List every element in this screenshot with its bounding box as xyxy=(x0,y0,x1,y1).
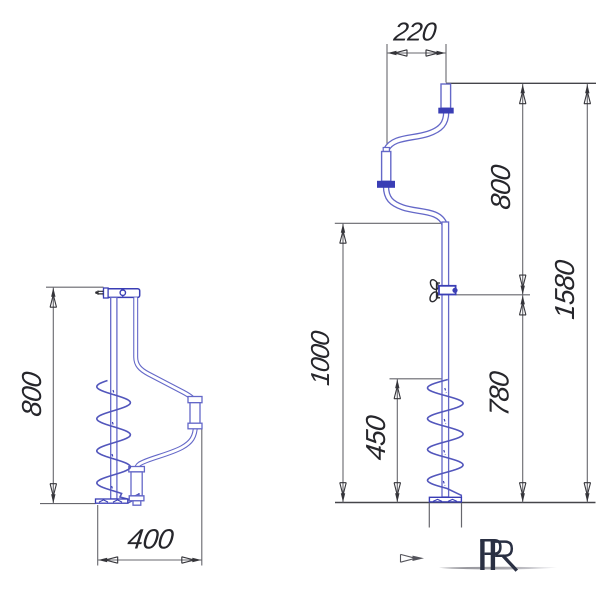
svg-text:1580: 1580 xyxy=(549,258,580,321)
svg-text:800: 800 xyxy=(485,162,516,211)
svg-text:780: 780 xyxy=(484,369,515,418)
svg-text:800: 800 xyxy=(16,369,47,418)
svg-text:450: 450 xyxy=(360,413,391,462)
svg-text:400: 400 xyxy=(126,524,176,555)
svg-text:220: 220 xyxy=(391,17,439,47)
svg-text:1000: 1000 xyxy=(305,329,335,387)
